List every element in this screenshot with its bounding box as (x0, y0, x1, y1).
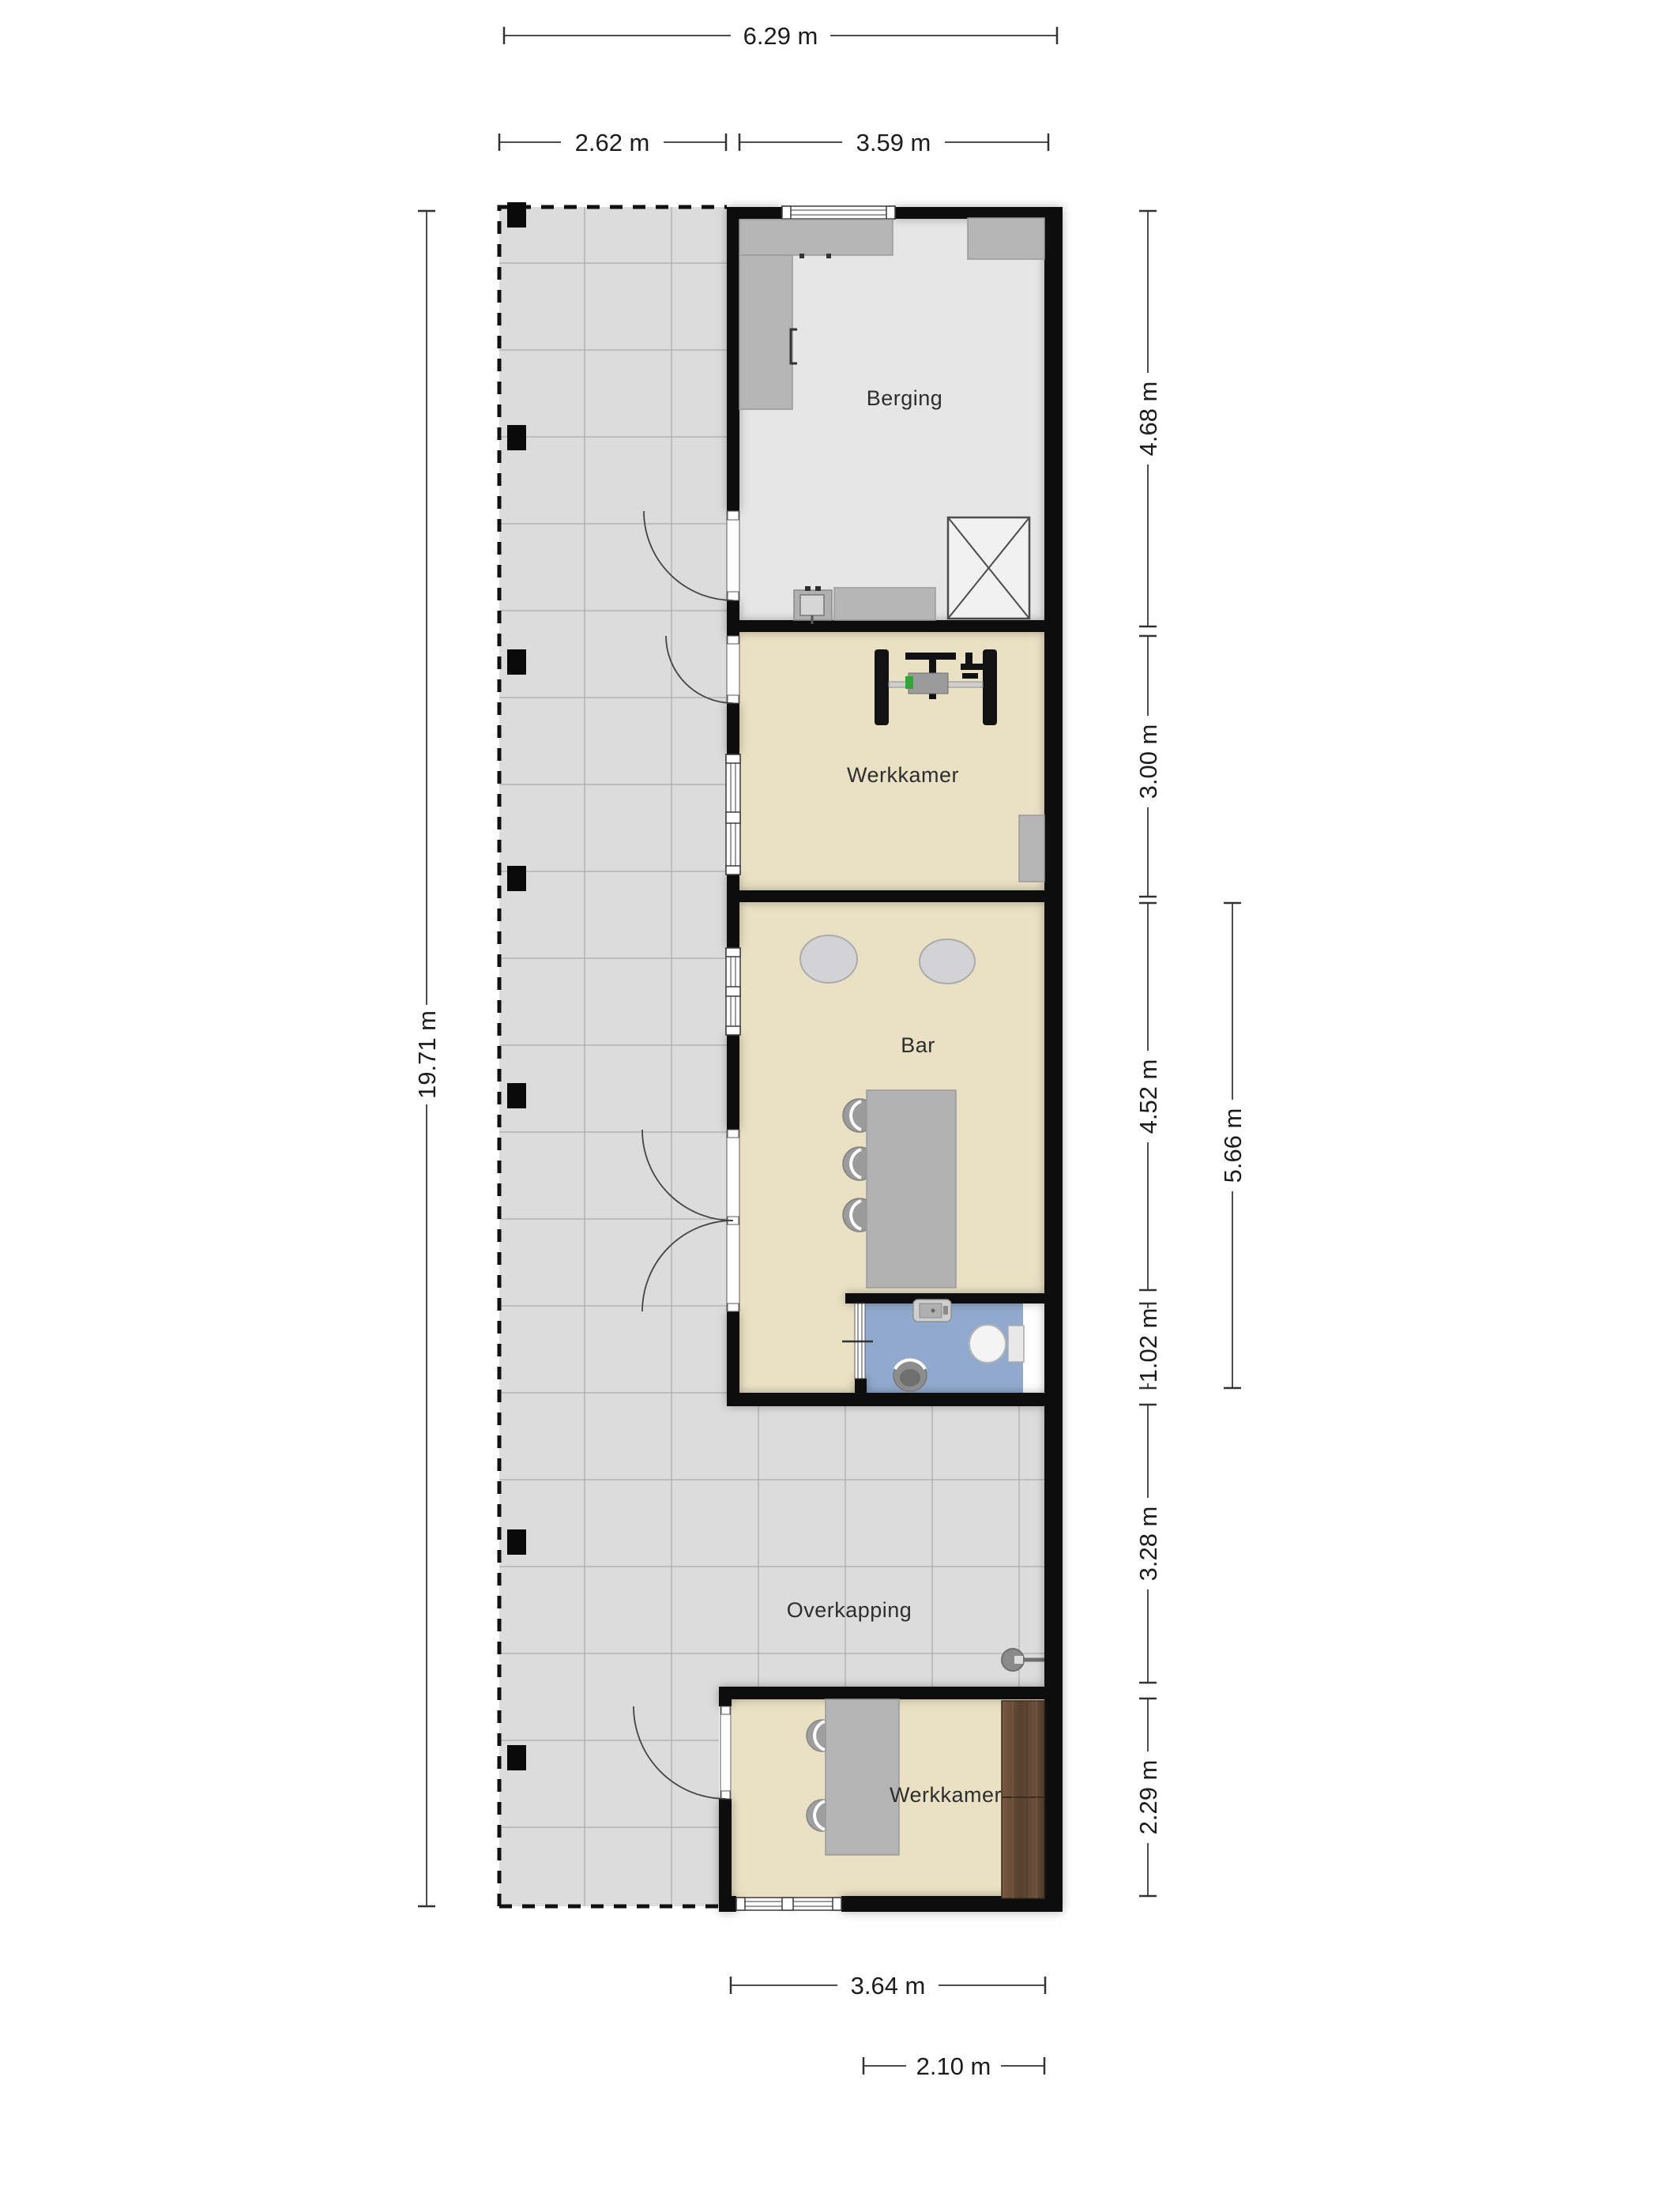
dim-bottom-toilet: 2.10 m (916, 2052, 991, 2080)
wall (727, 703, 739, 754)
skylight-x-box (948, 517, 1029, 619)
dim-right-berging: 4.68 m (1134, 382, 1162, 457)
dim-right-toilet: 1.02 m (1134, 1308, 1162, 1383)
terrace-post (507, 649, 526, 675)
floor-plan: Overkapping (0, 0, 1659, 2212)
wall-berging-werkkamer (739, 620, 1044, 632)
wall (719, 1687, 732, 1706)
hinge-dot (799, 254, 804, 258)
hinge-dot (826, 254, 831, 258)
wardrobe-wood-cabinet (1002, 1701, 1044, 1898)
storage-counter-bottom (834, 588, 935, 620)
terrace-post (507, 1745, 526, 1770)
wall (727, 1035, 739, 1130)
terrace-post (507, 866, 526, 891)
toilet-icon (969, 1325, 1024, 1363)
wall (727, 1311, 739, 1406)
dim-top-total: 6.29 m (743, 22, 818, 50)
wall-werkkamer-bar (739, 890, 1044, 902)
dim-bottom-werkkamer2: 3.64 m (851, 1972, 926, 1999)
washbasin-icon (893, 1360, 927, 1391)
oval-table (920, 939, 975, 984)
wall (727, 207, 739, 511)
utility-appliance-icon (794, 586, 832, 624)
wall-toilet-left (855, 1379, 867, 1396)
terrace-post (507, 425, 526, 450)
dim-top-terrace: 2.62 m (575, 129, 650, 156)
terrace-strip-upper (499, 207, 727, 1406)
dim-right-werkkamer2: 2.29 m (1134, 1760, 1162, 1835)
window-berging-top (782, 206, 895, 219)
terrace-post (507, 202, 526, 228)
desk (1019, 815, 1044, 882)
storage-cabinet-topright (968, 218, 1044, 259)
storage-counter-top (739, 220, 893, 255)
toilet-shower-strip (1023, 1303, 1044, 1393)
werkkamer2-label: Werkkamer (890, 1783, 1002, 1807)
wall (727, 600, 739, 636)
dim-right-bar: 4.52 m (1134, 1059, 1162, 1134)
desk (826, 1699, 899, 1855)
dim-right-bar-total: 5.66 m (1219, 1108, 1247, 1183)
terrace-post (507, 1083, 526, 1108)
wall (719, 1896, 736, 1912)
dim-right-overkapping: 3.28 m (1134, 1507, 1162, 1582)
terrace-mid (499, 1406, 1044, 1687)
wall-building-bottom (727, 1393, 1063, 1406)
terrace-strip-lower (499, 1687, 719, 1906)
wall (895, 207, 1063, 219)
bar-label: Bar (901, 1033, 935, 1057)
berging-label: Berging (867, 386, 943, 410)
dim-left-total: 19.71 m (413, 1010, 441, 1099)
dim-top-building: 3.59 m (856, 129, 931, 156)
terrace-post (507, 1529, 526, 1555)
dim-right-werkkamer: 3.00 m (1134, 724, 1162, 799)
bar-counter (867, 1090, 956, 1288)
storage-cabinet-left (739, 255, 792, 409)
floor-plan-canvas: Overkapping (0, 0, 1659, 2212)
window-bar-left (726, 948, 740, 1035)
wall-werkkamer2-top (719, 1687, 1063, 1699)
wall (727, 875, 739, 948)
sink-icon (913, 1300, 951, 1322)
wall (719, 1799, 732, 1912)
window-werkkamer1-left (726, 754, 740, 875)
werkkamer1-label: Werkkamer (847, 763, 959, 787)
room-werkkamer1-floor (739, 632, 1044, 890)
oval-table (800, 935, 857, 983)
overkapping-label: Overkapping (787, 1598, 912, 1622)
window-werkkamer2-bottom (736, 1898, 841, 1910)
wall (1044, 207, 1063, 1912)
